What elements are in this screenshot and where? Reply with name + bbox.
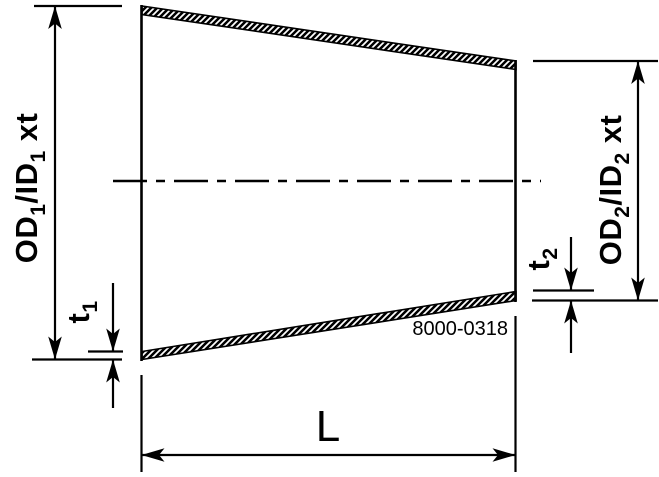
- od1-label: OD1/ID1xt: [9, 113, 50, 264]
- od2-label: OD2/ID2xt: [593, 115, 634, 266]
- reducer-top-wall: [142, 6, 516, 70]
- reducer-diagram-svg: OD1/ID1xt t1 OD2/ID2xt t2 L 8000-0318: [0, 0, 659, 477]
- technical-drawing-page: OD1/ID1xt t1 OD2/ID2xt t2 L 8000-0318: [0, 0, 659, 477]
- t1-label: t1: [61, 300, 102, 323]
- drawing-number: 8000-0318: [412, 318, 508, 340]
- length-label: L: [316, 402, 340, 451]
- t2-label: t2: [521, 247, 562, 270]
